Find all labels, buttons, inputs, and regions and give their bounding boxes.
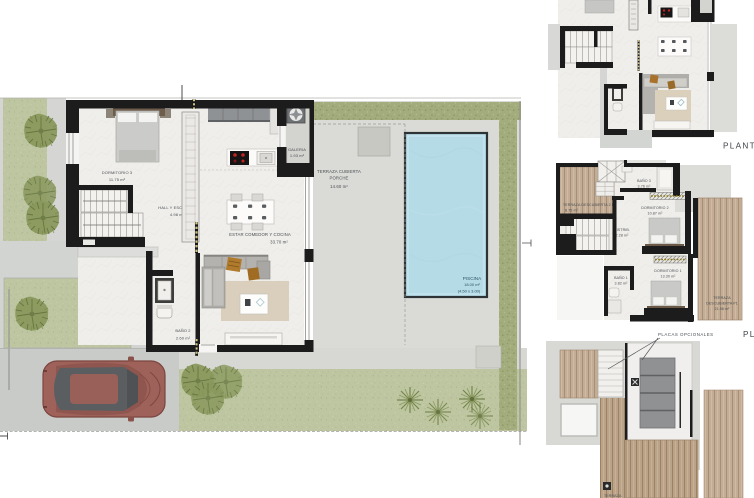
svg-text:GALERIA: GALERIA <box>288 147 306 152</box>
svg-text:DORMITORIO 2: DORMITORIO 2 <box>641 206 669 210</box>
svg-text:BAÑO 2: BAÑO 2 <box>175 328 191 333</box>
svg-text:1.93 m²: 1.93 m² <box>290 153 305 158</box>
svg-text:11.75 m²: 11.75 m² <box>109 177 126 182</box>
svg-text:2.60 m²: 2.60 m² <box>176 336 191 341</box>
svg-text:PLANTA PRIMERA: PLANTA PRIMERA <box>743 330 754 339</box>
svg-text:PISCINA: PISCINA <box>463 276 482 281</box>
svg-text:(4.50 x 3.00): (4.50 x 3.00) <box>458 289 481 294</box>
svg-text:33.70 m²: 33.70 m² <box>270 240 288 245</box>
svg-text:BAÑO 3: BAÑO 3 <box>637 178 651 183</box>
svg-text:DORMITORIO 1: DORMITORIO 1 <box>654 269 682 273</box>
svg-text:DESCUBIERTA P1: DESCUBIERTA P1 <box>706 302 738 306</box>
svg-text:TERRAZA: TERRAZA <box>713 296 731 300</box>
svg-text:BAÑO 1: BAÑO 1 <box>614 275 628 280</box>
svg-text:8.75 m²: 8.75 m² <box>565 209 579 213</box>
svg-text:DORMITORIO 3: DORMITORIO 3 <box>102 170 133 175</box>
svg-text:TERRAZA DESCUBIERTA 2 P1: TERRAZA DESCUBIERTA 2 P1 <box>563 203 616 207</box>
svg-text:3.82 m²: 3.82 m² <box>615 282 629 286</box>
svg-text:PLANTA BAJA: PLANTA BAJA <box>723 142 754 151</box>
svg-text:21.98 m²: 21.98 m² <box>715 307 731 311</box>
svg-text:PLACAS OPCIONALES: PLACAS OPCIONALES <box>658 332 714 337</box>
svg-text:PORCHE: PORCHE <box>330 176 349 181</box>
svg-text:TERRAZA: TERRAZA <box>604 494 622 498</box>
svg-text:2.28 m²: 2.28 m² <box>616 234 630 238</box>
svg-text:18.00 m²: 18.00 m² <box>464 282 480 287</box>
svg-text:ESTAR COMEDOR Y COCINA: ESTAR COMEDOR Y COCINA <box>229 232 291 237</box>
svg-text:3.76 m²: 3.76 m² <box>638 185 652 189</box>
svg-text:14.60 m²: 14.60 m² <box>330 184 348 189</box>
svg-text:10.87 m²: 10.87 m² <box>648 212 664 216</box>
svg-text:13.30 m²: 13.30 m² <box>661 275 677 279</box>
svg-text:TERRAZA CUBIERTA: TERRAZA CUBIERTA <box>317 169 361 174</box>
